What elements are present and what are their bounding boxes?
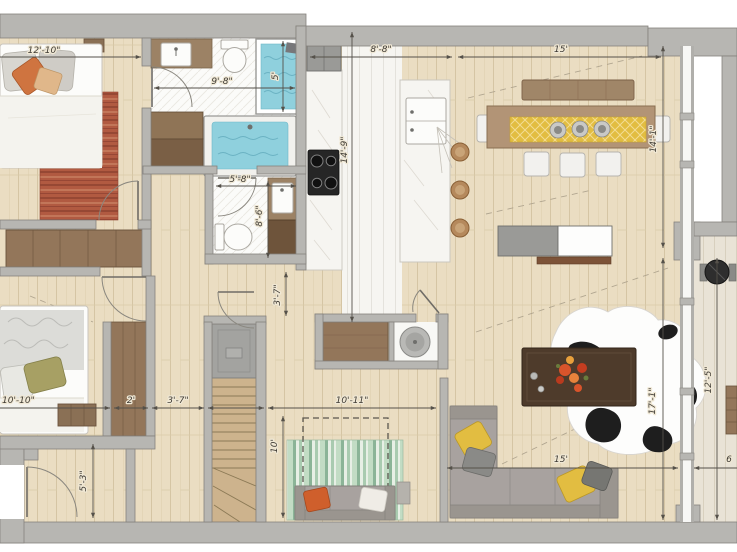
wardrobe [6, 230, 143, 267]
balcony-bench [726, 386, 737, 434]
dining-chairs-south [524, 152, 621, 177]
window-mullion [680, 453, 694, 460]
wall-segment [143, 166, 217, 174]
toilet [221, 40, 248, 73]
dim-label-dining-depth: 14'-1" [649, 125, 659, 152]
wall-segment [256, 322, 266, 522]
toilet [215, 224, 252, 250]
wall-segment [389, 322, 394, 361]
dim-label-shower-width: 5' [271, 72, 281, 80]
wall-segment [0, 14, 306, 38]
dim-label-entry-depth: 5'-3" [79, 470, 89, 491]
faucet [280, 188, 284, 192]
dining-table [487, 106, 655, 148]
dim-label-kitchen-length: 14'-9" [340, 136, 350, 163]
wall-segment [722, 56, 737, 222]
wall-segment [138, 220, 151, 229]
bath-cabinet [151, 112, 203, 166]
dim-label-dining-width: 15' [554, 45, 568, 55]
closet-floor [111, 322, 146, 436]
dim-label-bath2-width: 5'-8" [229, 175, 250, 185]
candle [538, 386, 544, 392]
bedroom-2 [0, 306, 146, 436]
wall-segment [146, 276, 155, 436]
wall-segment [24, 448, 38, 460]
wall-segment [0, 267, 100, 276]
bar-stools [451, 143, 469, 237]
dim-label-balcony-depth: 12'-5" [704, 366, 714, 393]
wall-segment [126, 449, 135, 522]
console-shelf [537, 257, 611, 264]
staircase [212, 324, 256, 522]
window-mullion [680, 113, 694, 120]
tub-faucet [248, 125, 253, 130]
foot-bench [58, 404, 96, 426]
dim-label-hall-clearance: 3'-7" [273, 284, 283, 305]
wall-segment [0, 522, 737, 543]
floor-plan-canvas: 12'-10" 9'-8" 5' 8'-8" 15' 14'-9" 14'-1"… [0, 0, 737, 552]
wall-segment [0, 220, 96, 229]
wall-segment [694, 222, 737, 236]
window-mullion [680, 388, 694, 395]
dim-label-den-width: 10'-11" [336, 396, 369, 406]
wall-segment [440, 378, 448, 522]
dim-label-kitchen-width: 8'-8" [370, 45, 391, 55]
cooktop [308, 150, 339, 195]
window-mullion [680, 298, 694, 305]
dim-label-living-width: 15' [554, 455, 568, 465]
wall-segment [103, 322, 111, 436]
wall-segment [205, 254, 306, 264]
wall-segment [438, 314, 448, 369]
storage-closet [323, 322, 388, 361]
master-bed [0, 44, 102, 168]
dim-label-den-depth: 10' [270, 439, 280, 453]
dim-label-balcony-width: 6 [726, 455, 732, 465]
drain [226, 348, 242, 358]
place-settings [550, 121, 610, 138]
dim-label-master-bath-width: 9'-8" [211, 77, 232, 87]
white-pillow [358, 487, 387, 512]
floor-plan: 12'-10" 9'-8" 5' 8'-8" 15' 14'-9" 14'-1"… [0, 0, 737, 552]
wall-segment [257, 166, 306, 174]
dim-label-living-depth: 17'-1" [648, 387, 658, 414]
coffee-table [522, 348, 636, 406]
window-mullion [680, 161, 694, 168]
wall-segment [296, 26, 306, 270]
wall-segment [0, 436, 155, 449]
wall-segment [315, 361, 446, 369]
wall-segment [315, 314, 416, 322]
entry-door-opening [0, 465, 24, 519]
dim-label-closet-offset: 3'-7" [167, 396, 188, 406]
dim-label-closet-width: 2' [127, 396, 135, 406]
window-wall [680, 46, 694, 522]
laundry-closet [323, 322, 430, 361]
wall-segment [205, 174, 213, 264]
candle [531, 373, 538, 380]
washer [400, 327, 430, 357]
wall-segment [142, 38, 151, 66]
wall-segment [142, 108, 151, 276]
dim-label-bedroom2-width: 10'-10" [2, 396, 35, 406]
den-sofa [295, 486, 395, 520]
wall-segment [204, 322, 212, 522]
side-table [397, 482, 410, 504]
sink [272, 183, 293, 213]
kitchen-floor [342, 46, 402, 322]
wall-segment [296, 26, 648, 46]
dim-label-master-bedroom-width: 12'-10" [28, 46, 61, 56]
orange-pillow [303, 487, 331, 513]
dim-label-bath2-depth: 8'-6" [255, 205, 265, 226]
